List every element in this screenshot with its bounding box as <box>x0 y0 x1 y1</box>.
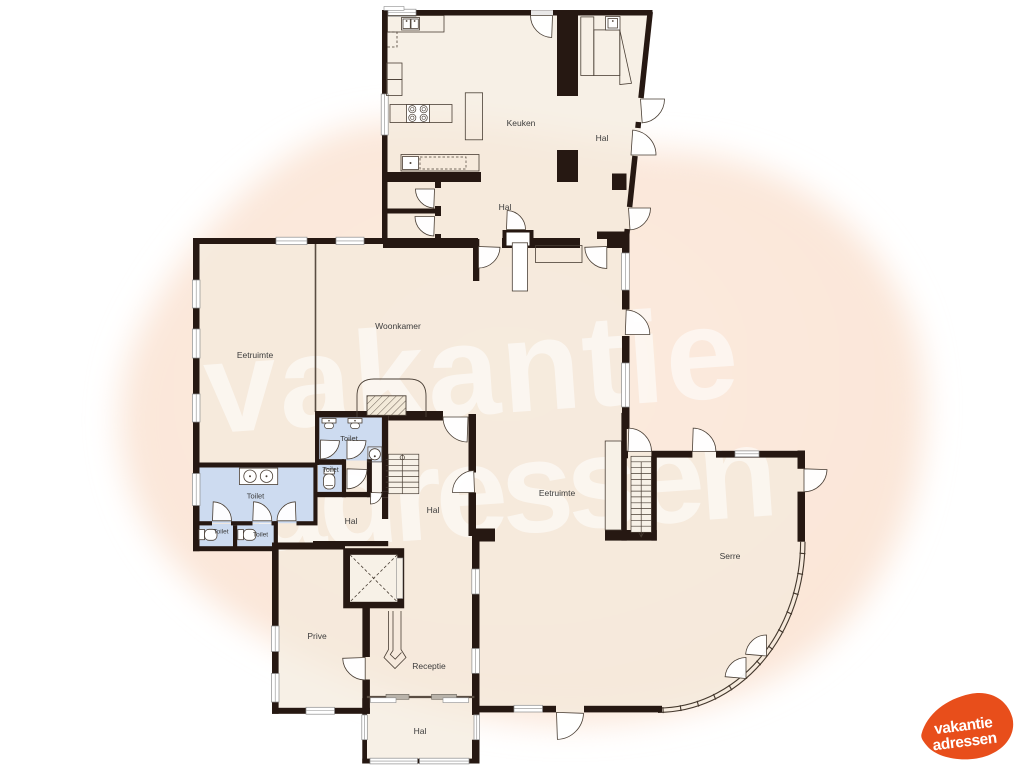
svg-text:Hal: Hal <box>596 133 609 143</box>
svg-text:Woonkamer: Woonkamer <box>375 321 421 331</box>
svg-text:Eetruimte: Eetruimte <box>237 350 274 360</box>
svg-text:Toilet: Toilet <box>213 529 228 536</box>
svg-text:Keuken: Keuken <box>507 118 536 128</box>
svg-text:Hal: Hal <box>414 726 427 736</box>
svg-text:Hal: Hal <box>345 516 358 526</box>
svg-text:Prive: Prive <box>307 631 327 641</box>
svg-text:Hal: Hal <box>499 202 512 212</box>
svg-text:Hal: Hal <box>427 505 440 515</box>
svg-text:Toilet: Toilet <box>340 434 358 443</box>
svg-text:Serre: Serre <box>720 551 741 561</box>
svg-text:Toilet: Toilet <box>322 467 338 474</box>
svg-text:Toilet: Toilet <box>247 492 265 501</box>
svg-text:Toilet: Toilet <box>253 532 268 539</box>
svg-text:Eetruimte: Eetruimte <box>539 488 576 498</box>
svg-text:Receptie: Receptie <box>412 661 446 671</box>
